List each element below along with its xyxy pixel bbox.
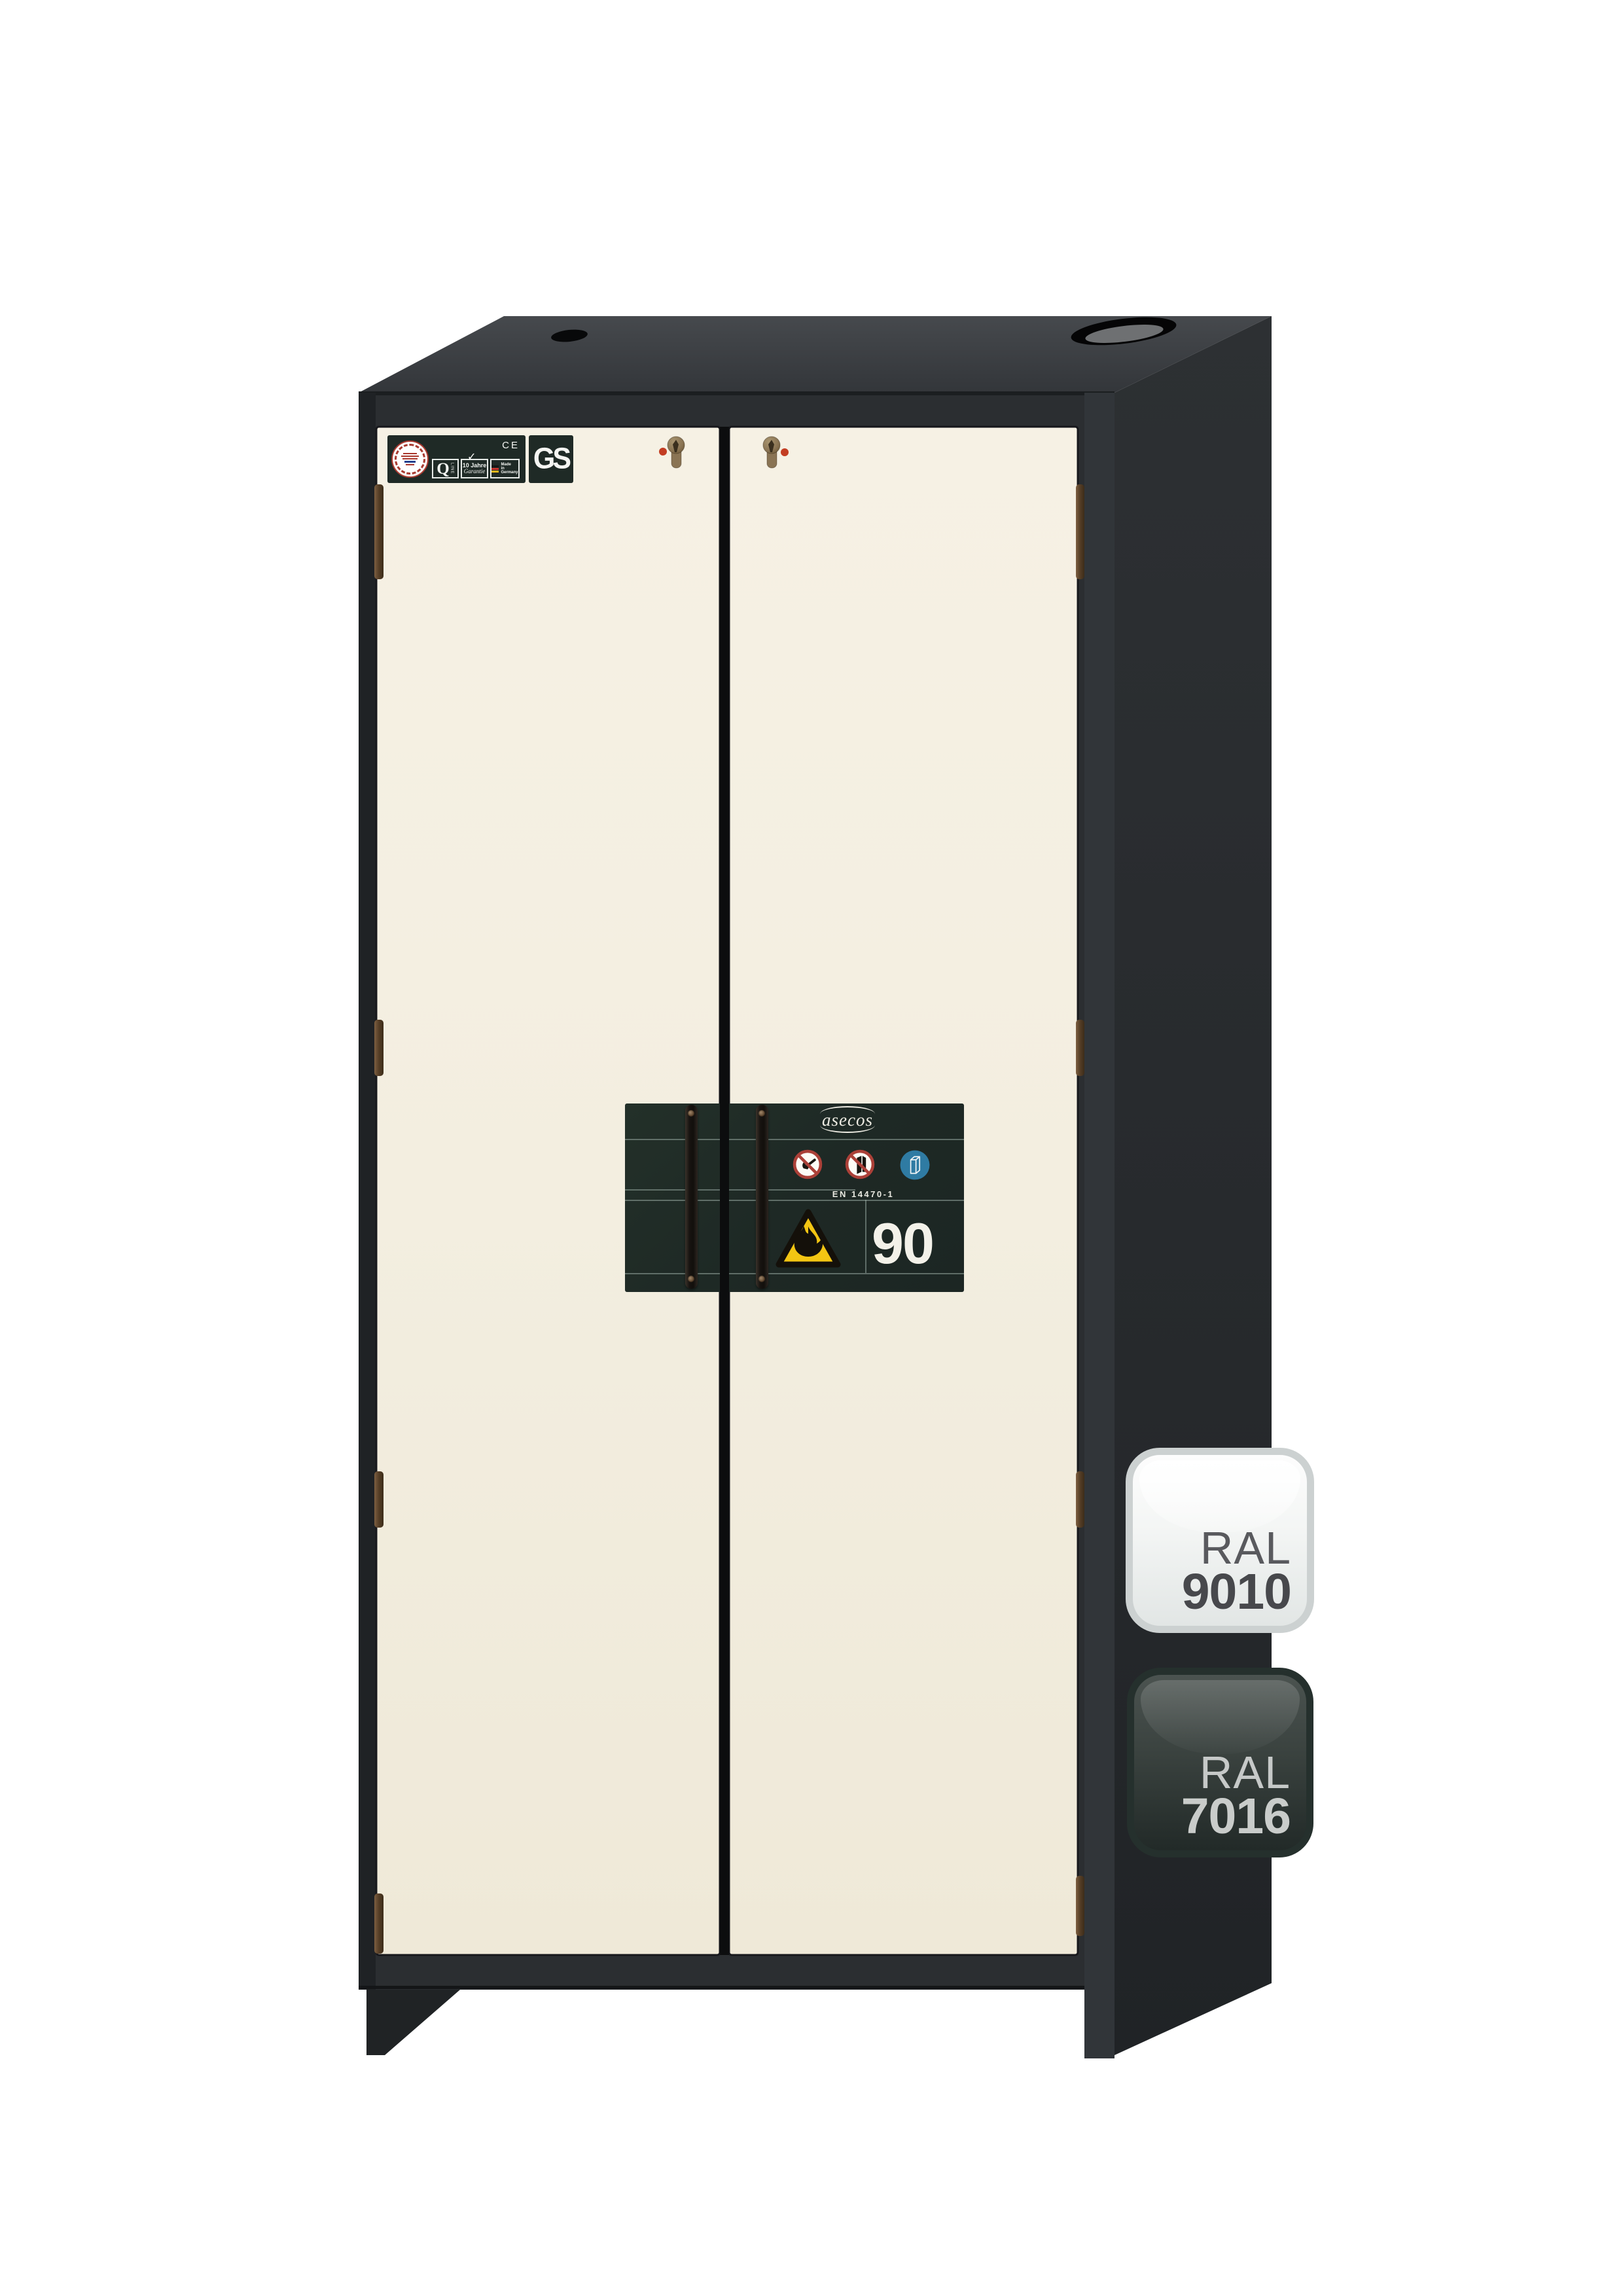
certification-strip: Q LINE ✓ 10 Jahre Garantie Made in Germa… (387, 435, 526, 483)
ral-series-label: RAL (1200, 1527, 1291, 1569)
ral-badge-9010: RAL 9010 (1126, 1448, 1314, 1633)
base-shadow-line (359, 1986, 1084, 1989)
door-handle-left[interactable] (685, 1105, 698, 1289)
standard-text: EN 14470-1 (785, 1189, 942, 1199)
no-open-flames-icon (793, 1149, 823, 1179)
keep-closed-icon (845, 1149, 875, 1179)
germany-flag-icon (491, 465, 499, 473)
flammable-warning-icon (774, 1207, 842, 1270)
warranty-word: Garantie (464, 469, 486, 475)
asecos-logo: asecos (802, 1110, 893, 1130)
check-icon: ✓ (467, 452, 476, 463)
ral-series-label: RAL (1200, 1751, 1291, 1793)
cabinet-right-frame-strip (1084, 393, 1115, 2058)
ral-badge-7016: RAL 7016 (1127, 1668, 1313, 1857)
warranty-badge: ✓ 10 Jahre Garantie (461, 459, 488, 478)
door-center-gap-overlay (720, 1103, 729, 1292)
cabinet-front-top-edge (359, 391, 1115, 395)
cabinet-left-foot (366, 1990, 460, 2055)
q-line-letter: Q (437, 461, 449, 477)
ce-mark: CE (502, 440, 520, 451)
lock-indicator-dot-right (781, 448, 789, 456)
door-handle-right[interactable] (756, 1105, 768, 1289)
product-photo-scene: Q LINE ✓ 10 Jahre Garantie Made in Germa… (0, 0, 1623, 2296)
dibt-seal-icon (391, 440, 429, 478)
lock-indicator-dot-left (659, 448, 667, 456)
ral-code-9010: 9010 (1182, 1569, 1291, 1615)
q-line-badge: Q LINE (432, 459, 459, 478)
q-line-sub: LINE (450, 463, 454, 474)
cabinet-left-edge (359, 393, 376, 1990)
made-in-germany-badge: Made in Germany (490, 459, 520, 478)
fire-rating: 90 (865, 1219, 940, 1268)
mandatory-container-icon (899, 1149, 931, 1181)
gs-mark: GS (533, 442, 569, 476)
gs-mark-badge: GS (529, 435, 573, 483)
made-line-3: Germany (501, 471, 518, 475)
type-plate: asecos EN 14470-1 90 (625, 1103, 964, 1292)
ral-code-7016: 7016 (1181, 1793, 1291, 1840)
